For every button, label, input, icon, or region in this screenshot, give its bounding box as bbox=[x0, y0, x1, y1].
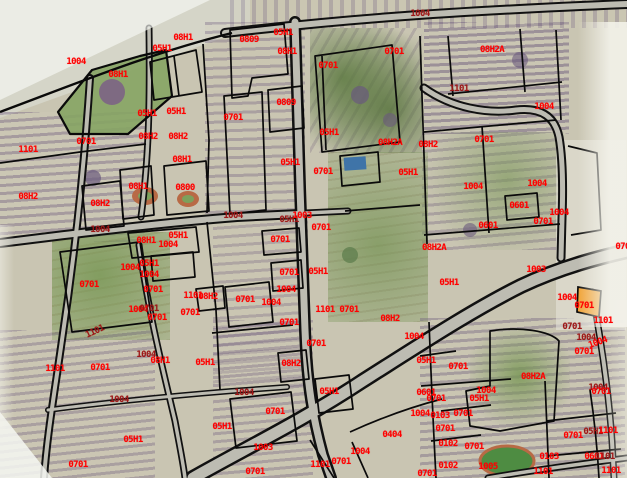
satellite-texture-topstrip bbox=[230, 0, 627, 28]
parcel-label: 1004 bbox=[223, 211, 242, 221]
parcel-label: 1004 bbox=[109, 395, 128, 405]
parcel-label: 0701 bbox=[68, 460, 87, 470]
parcel-label: 0701 bbox=[562, 322, 581, 332]
parcel-label: 08H2 bbox=[138, 132, 157, 142]
parcel-label: 0701 bbox=[306, 339, 325, 349]
parcel-label: 1101 bbox=[315, 305, 334, 315]
roads bbox=[0, 4, 627, 478]
parcel-label: 1004 bbox=[587, 335, 609, 351]
parcel-label: 0601 bbox=[416, 388, 435, 398]
satellite-texture-trees-ne bbox=[310, 28, 422, 153]
satellite-texture-mixed-east bbox=[422, 132, 564, 250]
parcel-label: 1004 bbox=[576, 333, 595, 343]
satellite-texture-rows-midtop bbox=[205, 22, 305, 217]
parcel-label: 0701 bbox=[265, 407, 284, 417]
parcel-label: 1004 bbox=[261, 298, 280, 308]
parcel-label: 05H1 bbox=[469, 394, 488, 404]
parcel-label: 08H1 bbox=[108, 70, 127, 80]
parcel-label: 1101 bbox=[45, 364, 64, 374]
parcel-label: 1004 bbox=[90, 225, 109, 235]
satellite-texture-rows-se bbox=[420, 318, 625, 478]
parcel-boundaries bbox=[0, 24, 621, 478]
parcel-label: 0701 bbox=[474, 135, 493, 145]
parcel-label: 08H1 bbox=[172, 155, 191, 165]
parcel-label: 0103 bbox=[539, 452, 558, 462]
parcel-label: 08H2A bbox=[422, 243, 446, 253]
parcel-label: 0701 bbox=[435, 424, 454, 434]
parcel-labels-layer: 05H108H1100408H1080905H108H1070107011004… bbox=[0, 0, 627, 478]
satellite-texture-garden-left bbox=[52, 232, 170, 340]
parcel-label: 1004 bbox=[410, 9, 429, 19]
parcel-label: 1004 bbox=[128, 305, 147, 315]
parcel-label: 1004 bbox=[276, 285, 295, 295]
park-and-features bbox=[58, 50, 534, 476]
parcel-label: 05H1 bbox=[319, 387, 338, 397]
parcel-label: 0701 bbox=[235, 295, 254, 305]
parcel-label: 0701 bbox=[615, 242, 627, 252]
photo-edge-right bbox=[578, 22, 627, 327]
satellite-texture-green-se bbox=[470, 330, 570, 430]
parcel-label: 1004 bbox=[404, 332, 423, 342]
parcel-label: 0701 bbox=[279, 268, 298, 278]
parcel-label: 05H1 bbox=[139, 259, 158, 269]
parcel-label: 0701 bbox=[147, 313, 166, 323]
parcel-label: 08H1 bbox=[136, 236, 155, 246]
parcel-label: 08H2 bbox=[168, 132, 187, 142]
parcel-label: 05H1 bbox=[137, 109, 156, 119]
parcel-label: 0701 bbox=[279, 318, 298, 328]
parcel-label: 05H1 bbox=[123, 435, 142, 445]
parcel-label: 0701 bbox=[223, 113, 242, 123]
parcel-label: 1004 bbox=[158, 240, 177, 250]
parcel-label: 0701 bbox=[417, 469, 436, 478]
parcel-label: 0701 bbox=[245, 467, 264, 477]
parcel-label: 1101 bbox=[593, 316, 612, 326]
parcel-label: 05H1 bbox=[152, 44, 171, 54]
parcel-label: 08H1 bbox=[277, 47, 296, 57]
parcel-label: 0800 bbox=[175, 183, 194, 193]
parcel-label: 1004 bbox=[410, 409, 429, 419]
parcel-label: 05H1 bbox=[195, 358, 214, 368]
parcel-label: 1003 bbox=[526, 265, 545, 275]
parcel-label: 08H2A bbox=[521, 372, 545, 382]
parcel-label: 05H1 bbox=[212, 422, 231, 432]
parcel-label: 0701 bbox=[139, 304, 158, 314]
parcel-label: 0701 bbox=[180, 308, 199, 318]
parcel-label: 1003 bbox=[292, 211, 311, 221]
parcel-label: 1004 bbox=[120, 263, 139, 273]
satellite-texture-rows-sw bbox=[0, 330, 155, 478]
parcel-label: 0404 bbox=[382, 430, 401, 440]
parcel-label: 1004 bbox=[588, 383, 607, 393]
parcel-label: 05H1 bbox=[308, 267, 327, 277]
map-viewport[interactable]: 05H108H1100408H1080905H108H1070107011004… bbox=[0, 0, 627, 478]
parcel-label: 1101 bbox=[449, 84, 468, 94]
parcel-label: 0701 bbox=[76, 137, 95, 147]
satellite-texture-rows-left bbox=[0, 112, 145, 242]
parcel-label: 1004 bbox=[534, 102, 553, 112]
parcel-label: 05H1 bbox=[280, 158, 299, 168]
parcel-label: 1004 bbox=[476, 386, 495, 396]
parcel-label: 0701 bbox=[533, 217, 552, 227]
photo-edge-left bbox=[0, 225, 14, 430]
parcel-label: 05H1 bbox=[439, 278, 458, 288]
parcel-boundary-overlay bbox=[0, 0, 627, 478]
parcel-label: 08H1 bbox=[128, 182, 147, 192]
parcel-label: 0102 bbox=[438, 461, 457, 471]
parcel-label: 1004 bbox=[234, 388, 253, 398]
parcel-label: 05H1 bbox=[166, 107, 185, 117]
parcel-label: 0701 bbox=[270, 235, 289, 245]
satellite-texture-rows-east bbox=[424, 22, 569, 134]
satellite-texture-rows-south bbox=[213, 320, 313, 478]
parcel-label: 0701 bbox=[143, 285, 162, 295]
parcel-label: 0701 bbox=[574, 301, 593, 311]
parcel-label: 0601 bbox=[584, 452, 603, 462]
parcel-label: 08H2A bbox=[480, 45, 504, 55]
parcel-label: 05H1 bbox=[273, 28, 292, 38]
parcel-label: 05H1 bbox=[168, 231, 187, 241]
parcel-label: 08H2A bbox=[378, 138, 402, 148]
parcel-label: 0601 bbox=[509, 201, 528, 211]
parcel-label: 0701 bbox=[384, 47, 403, 57]
parcel-label: 1101 bbox=[84, 323, 106, 340]
parcel-label: 0103 bbox=[430, 411, 449, 421]
parcel-label: 08H2 bbox=[198, 292, 217, 302]
parcel-label: 0701 bbox=[313, 167, 332, 177]
parcel-label: 1003 bbox=[253, 443, 272, 453]
parcel-label: 1101 bbox=[183, 291, 202, 301]
parcel-label: 05H1 bbox=[583, 427, 602, 437]
parcel-label: 1101 bbox=[601, 466, 620, 476]
parcel-label: 0701 bbox=[318, 61, 337, 71]
parcel-label: 08H2 bbox=[380, 314, 399, 324]
parcel-label: 08H2 bbox=[418, 140, 437, 150]
parcel-label: 08H1 bbox=[173, 33, 192, 43]
parcel-label: 1005 bbox=[478, 462, 497, 472]
parcel-label: 1101 bbox=[18, 145, 37, 155]
parcel-label: 1004 bbox=[557, 293, 576, 303]
photo-edge-right-lower bbox=[602, 300, 627, 478]
parcel-label: 0701 bbox=[311, 223, 330, 233]
parcel-label: 0701 bbox=[339, 305, 358, 315]
satellite-texture-garden-mideast bbox=[328, 152, 428, 322]
parcel-label: 08H2 bbox=[18, 192, 37, 202]
parcel-label: 05H1 bbox=[398, 168, 417, 178]
parcel-label: 0701 bbox=[79, 280, 98, 290]
parcel-label: 1004 bbox=[139, 270, 158, 280]
parcel-label: 0701 bbox=[464, 442, 483, 452]
parcel-label: 08H1 bbox=[150, 356, 169, 366]
parcel-label: 1004 bbox=[549, 208, 568, 218]
parcel-label: 0701 bbox=[453, 409, 472, 419]
parcel-label: 0701 bbox=[448, 362, 467, 372]
parcel-label: 0701 bbox=[426, 394, 445, 404]
parcel-label: 05H1 bbox=[279, 215, 298, 225]
parcel-label: 0102 bbox=[438, 439, 457, 449]
parcel-label: 1004 bbox=[66, 57, 85, 67]
parcel-label: 05H1 bbox=[416, 356, 435, 366]
highlighted-parcel bbox=[577, 287, 601, 317]
parcel-label: 05H1 bbox=[319, 128, 338, 138]
parcel-label: 0701 bbox=[90, 363, 109, 373]
parcel-label: 0701 bbox=[331, 457, 350, 467]
parcel-label: 1004 bbox=[136, 350, 155, 360]
parcel-label: 1004 bbox=[527, 179, 546, 189]
parcel-label: 1004 bbox=[463, 182, 482, 192]
photo-edge-bottomleft bbox=[0, 412, 52, 478]
parcel-label: 0701 bbox=[574, 347, 593, 357]
parcel-label: 0701 bbox=[563, 431, 582, 441]
parcel-label: 1101 bbox=[598, 426, 617, 436]
parcel-label: 0601 bbox=[478, 221, 497, 231]
photo-edge-topleft bbox=[0, 0, 210, 100]
satellite-texture-right-pale bbox=[556, 140, 626, 330]
parcel-label: 1101 bbox=[595, 452, 614, 462]
parcel-label: 0809 bbox=[239, 35, 258, 45]
parcel-label: 08H2 bbox=[90, 199, 109, 209]
satellite-texture-topleft bbox=[0, 0, 250, 118]
parcel-label: 08H2 bbox=[281, 359, 300, 369]
parcel-label: 0809 bbox=[276, 98, 295, 108]
parcel-label: 0701 bbox=[591, 387, 610, 397]
satellite-texture-rows-center bbox=[213, 218, 308, 393]
parcel-label: 1004 bbox=[350, 447, 369, 457]
parcel-label: 1101 bbox=[533, 467, 552, 477]
parcel-label: 1101 bbox=[310, 460, 329, 470]
